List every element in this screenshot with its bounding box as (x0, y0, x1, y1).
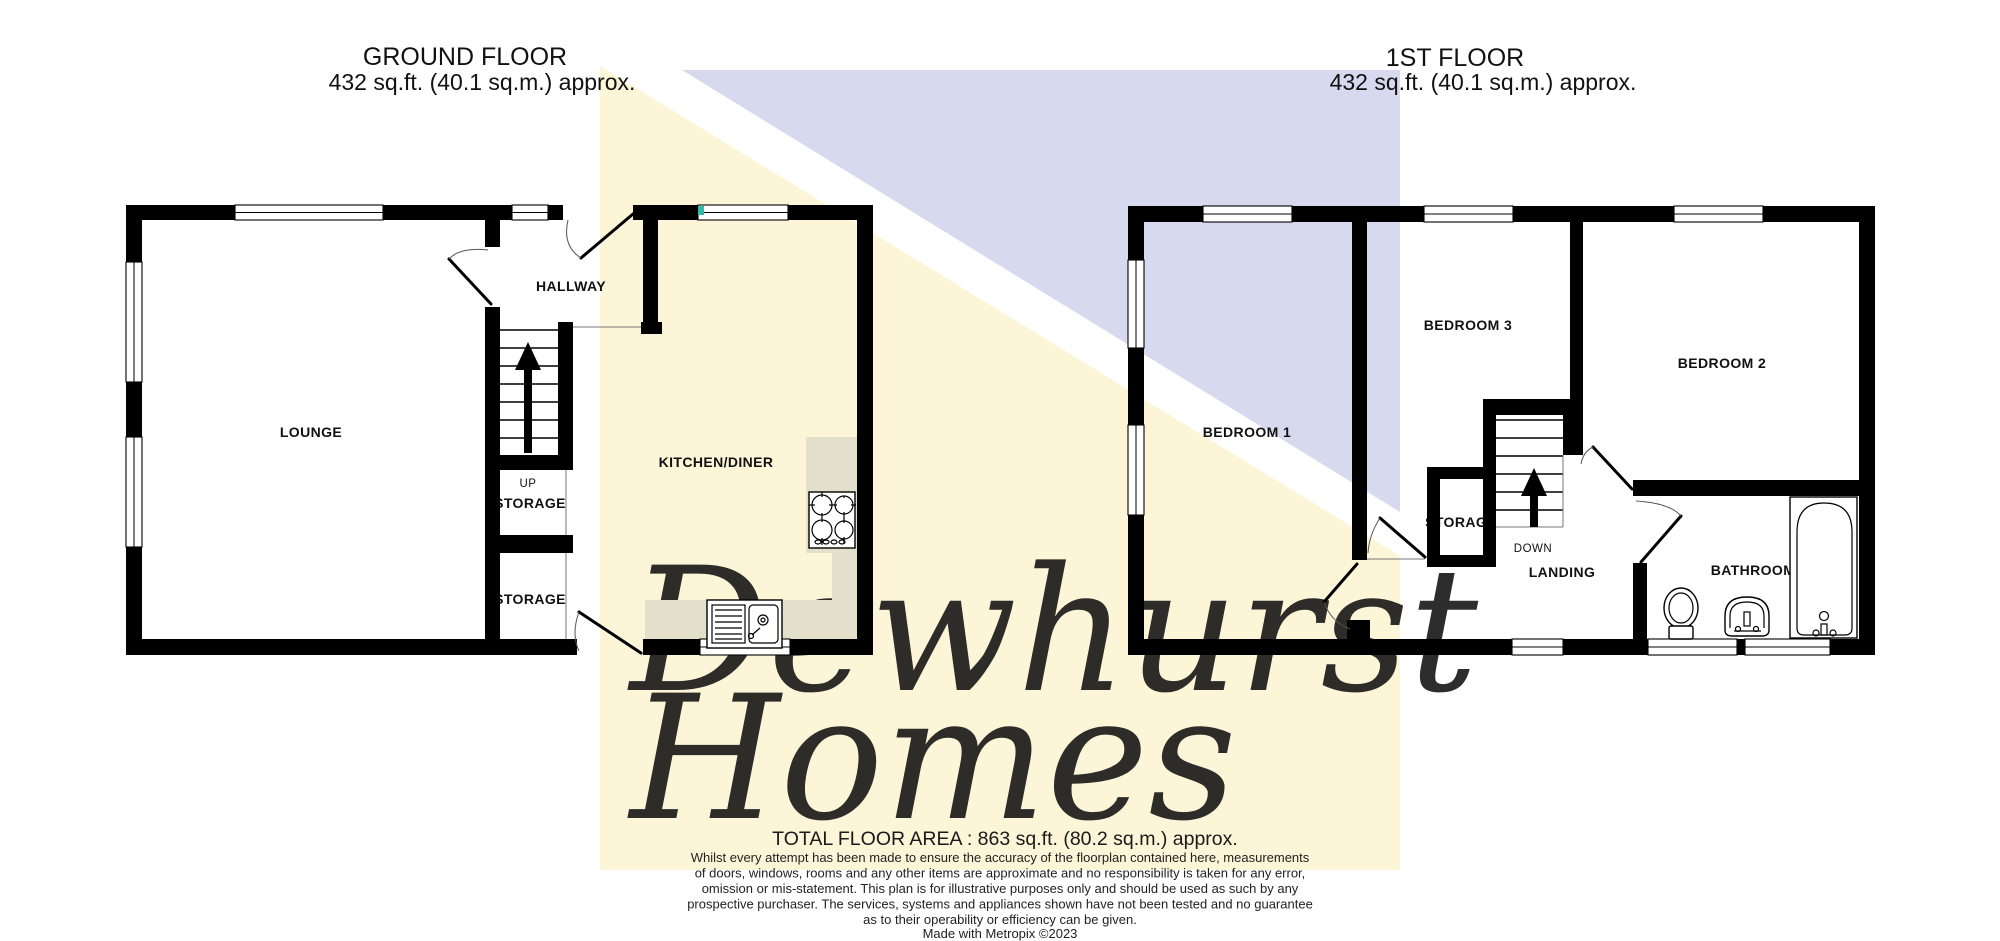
floorplan-page: Dewhurst Homes GROUND FLOOR 432 sq.ft. (… (0, 0, 2000, 941)
storage-understairs-label: STORAGE (494, 495, 566, 511)
bedroom2-label: BEDROOM 2 (1678, 355, 1766, 371)
bedroom2-door (1593, 447, 1632, 489)
ground-floor-title: GROUND FLOOR (363, 43, 567, 71)
first-floor-title: 1ST FLOOR (1386, 44, 1524, 72)
toilet-icon (1664, 588, 1698, 639)
hallway-label: HALLWAY (536, 278, 606, 294)
bathroom-door (1641, 516, 1681, 562)
metropix-credit: Made with Metropix ©2023 (923, 926, 1078, 941)
first-floor-area: 432 sq.ft. (40.1 sq.m.) approx. (1330, 69, 1637, 95)
disclaimer-line-5: as to their operability or efficiency ca… (863, 912, 1137, 927)
kitchen-diner-label: KITCHEN/DINER (659, 454, 774, 470)
footer: TOTAL FLOOR AREA : 863 sq.ft. (80.2 sq.m… (687, 828, 1313, 941)
lounge-label: LOUNGE (280, 424, 342, 440)
hob-icon (809, 492, 856, 548)
ground-floor-area: 432 sq.ft. (40.1 sq.m.) approx. (329, 69, 636, 95)
disclaimer-line-1: Whilst every attempt has been made to en… (691, 850, 1310, 865)
bedroom1-label: BEDROOM 1 (1203, 424, 1291, 440)
landing-label: LANDING (1529, 564, 1596, 580)
disclaimer-line-4: prospective purchaser. The services, sys… (687, 897, 1313, 912)
sink-icon (707, 600, 782, 648)
stairs-up-icon (500, 330, 558, 453)
floorplan-canvas: Dewhurst Homes GROUND FLOOR 432 sq.ft. (… (0, 0, 2000, 941)
stairs-up-label: UP (520, 478, 537, 490)
basin-icon (1725, 597, 1769, 636)
total-floor-area: TOTAL FLOOR AREA : 863 sq.ft. (80.2 sq.m… (772, 828, 1238, 850)
disclaimer-line-2: of doors, windows, rooms and any other i… (695, 866, 1306, 881)
bathtub-icon (1790, 497, 1857, 638)
disclaimer-line-3: omission or mis-statement. This plan is … (702, 881, 1299, 896)
storage-rear-label: STORAGE (494, 591, 566, 607)
stairs-down-label: DOWN (1514, 543, 1552, 555)
bathroom-label: BATHROOM (1711, 562, 1796, 578)
lounge-door (449, 259, 491, 304)
stairs-down-icon (1496, 420, 1563, 527)
bedroom3-label: BEDROOM 3 (1424, 317, 1512, 333)
window-accent-tick (698, 206, 704, 215)
